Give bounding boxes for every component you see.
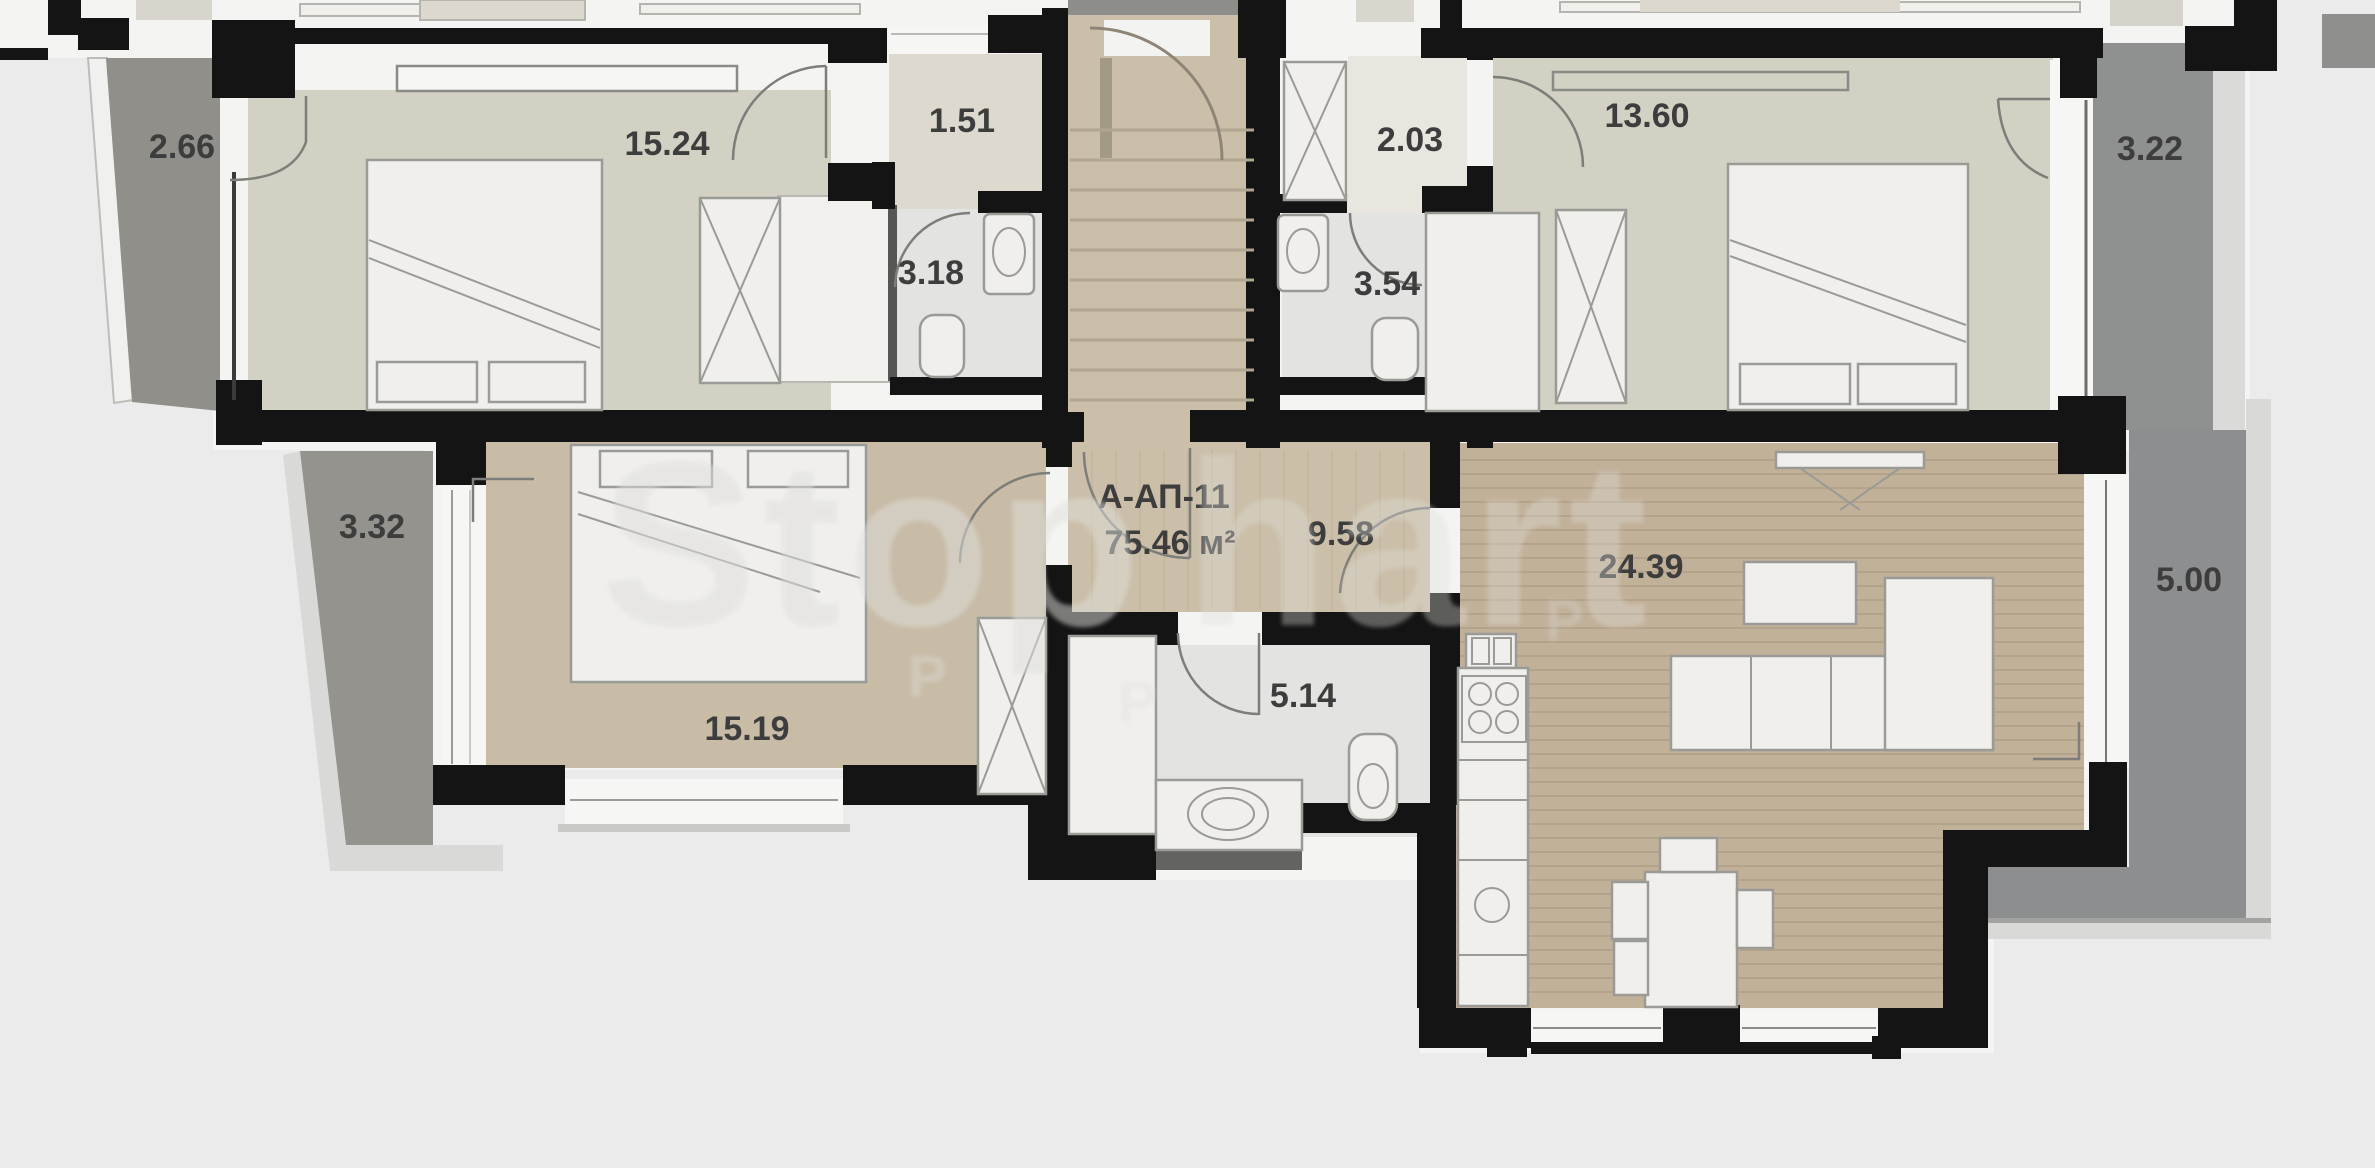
svg-text:2.66: 2.66 [149, 128, 215, 166]
svg-text:Stop: Stop [600, 412, 1146, 675]
svg-text:13.60: 13.60 [1604, 97, 1689, 135]
svg-text:1.51: 1.51 [929, 102, 995, 140]
svg-text:3.32: 3.32 [339, 508, 405, 546]
svg-text:3.54: 3.54 [1354, 265, 1420, 303]
svg-text:P: P [1545, 588, 1584, 653]
svg-text:3.22: 3.22 [2117, 130, 2183, 168]
svg-text:2.03: 2.03 [1377, 121, 1443, 159]
svg-text:5.00: 5.00 [2156, 561, 2222, 599]
svg-text:5.14: 5.14 [1270, 677, 1336, 715]
svg-text:P: P [1118, 670, 1157, 735]
svg-text:P: P [908, 644, 947, 709]
svg-text:3.18: 3.18 [898, 254, 964, 292]
svg-text:15.19: 15.19 [704, 710, 789, 748]
svg-text:15.24: 15.24 [624, 125, 709, 163]
